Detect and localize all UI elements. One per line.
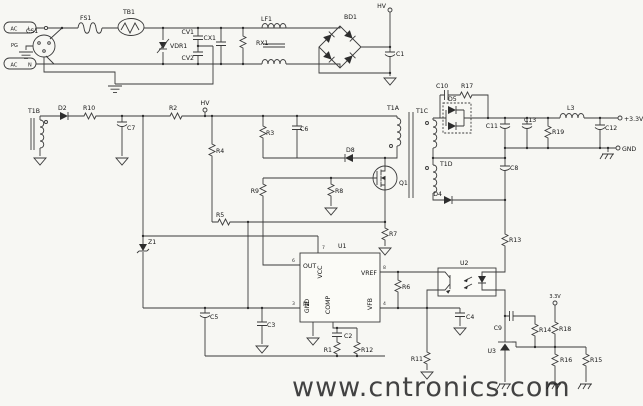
c5-capacitor-icon xyxy=(200,313,210,318)
r16-label: R16 xyxy=(560,357,572,364)
r5-resistor-icon xyxy=(216,219,232,225)
r16-resistor-icon xyxy=(552,352,558,368)
cv2-label: CV2 xyxy=(182,55,195,62)
u1-pin4-number: 4 xyxy=(383,301,386,307)
d5-diode-icon xyxy=(448,106,456,114)
r19-label: R19 xyxy=(552,129,564,136)
r17-resistor-icon xyxy=(458,92,474,98)
r2-label: R2 xyxy=(169,105,177,112)
watermark: www.cntronics.com xyxy=(292,372,571,403)
c9-label: C9 xyxy=(494,325,502,332)
d4-label: D4 xyxy=(433,191,442,198)
cs1-label: CS1 xyxy=(26,28,38,35)
c1-capacitor-icon xyxy=(385,52,395,57)
ground-icon xyxy=(454,328,466,335)
t1d-label: T1D xyxy=(439,161,453,168)
r18-resistor-icon xyxy=(552,320,558,336)
ground-icon xyxy=(384,78,396,85)
r9-resistor-icon xyxy=(260,182,266,198)
d4-diode-icon xyxy=(444,196,452,204)
c7-label: C7 xyxy=(127,125,135,132)
ac-live-label: AC xyxy=(11,27,18,33)
feedback-network: R13 U2 C9 R14 3.3V R18 U3 R16 R15 xyxy=(438,232,602,389)
d2-diode-icon xyxy=(60,112,68,120)
earth-ground-icon xyxy=(108,86,122,92)
fuse-fs1: FS1 xyxy=(78,15,102,33)
chassis-ground-icon xyxy=(600,154,614,159)
r7-label: R7 xyxy=(389,231,397,238)
ground-icon xyxy=(307,338,319,345)
c11-label: C11 xyxy=(486,123,498,130)
d5-diode-icon xyxy=(448,122,456,130)
c12-label: C12 xyxy=(605,125,617,132)
d2-label: D2 xyxy=(58,105,67,112)
r8-resistor-icon xyxy=(328,182,334,198)
c7-capacitor-icon xyxy=(117,122,127,127)
r17-label: R17 xyxy=(461,83,473,90)
r8-label: R8 xyxy=(335,188,343,195)
shunt-regulator-u3: U3 xyxy=(488,342,512,355)
l3-inductor-icon xyxy=(560,114,584,119)
ground-icon xyxy=(116,158,128,165)
optocoupler-u2: U2 xyxy=(438,260,496,296)
cv1-label: CV1 xyxy=(182,29,195,36)
r11-label: R11 xyxy=(411,356,423,363)
r3-label: R3 xyxy=(266,130,274,137)
r10-resistor-icon xyxy=(82,113,98,119)
rx1-resistor-icon xyxy=(240,34,246,50)
bridge-rectifier-bd1: BD1 xyxy=(319,14,361,68)
z1-label: Z1 xyxy=(148,239,156,246)
rx1-label: RX1 xyxy=(256,40,269,47)
cv1-capacitor-icon xyxy=(193,36,203,40)
r13-resistor-icon xyxy=(502,232,508,248)
c11-capacitor-icon xyxy=(500,124,510,129)
cv2-capacitor-icon xyxy=(193,52,203,56)
r6-label: R6 xyxy=(402,284,410,291)
r13-label: R13 xyxy=(509,237,521,244)
neutral-terminal-label: N xyxy=(28,63,32,69)
u1-pin8-number: 8 xyxy=(383,265,386,271)
u1-pin-vref-label: VREF xyxy=(361,270,377,277)
l3-label: L3 xyxy=(567,105,574,112)
t1c-label: T1C xyxy=(415,108,428,115)
r7-resistor-icon xyxy=(382,226,388,242)
d5-label: D5 xyxy=(448,96,457,103)
c5-label: C5 xyxy=(210,314,218,321)
c12-capacitor-icon xyxy=(595,125,605,130)
r6-resistor-icon xyxy=(395,278,401,294)
lf1-top-winding-icon xyxy=(262,24,286,29)
ground-icon xyxy=(34,158,46,165)
cx1-label: CX1 xyxy=(204,35,217,42)
c3-capacitor-icon xyxy=(257,322,267,326)
r4-label: R4 xyxy=(216,148,224,155)
chassis-ground-icon xyxy=(578,384,592,389)
c4-label: C4 xyxy=(466,314,474,321)
gnd-out-label: GND xyxy=(622,146,636,153)
c2-label: C2 xyxy=(344,333,352,340)
pg-label: PG xyxy=(11,43,18,49)
r10-label: R10 xyxy=(83,105,95,112)
u1-pin7-number: 7 xyxy=(322,245,325,251)
c3-label: C3 xyxy=(267,322,275,329)
q1-label: Q1 xyxy=(399,180,408,187)
r4-resistor-icon xyxy=(209,142,215,158)
cx1-capacitor-icon xyxy=(216,42,226,46)
secondary-side: T1C T1D D5 C10 R17 C11 C13 R19 L3 C12 +3… xyxy=(415,83,643,204)
r18-label: R18 xyxy=(559,326,571,333)
r11-resistor-icon xyxy=(424,350,430,366)
d8-label: D8 xyxy=(346,147,355,154)
c2-capacitor-icon xyxy=(332,333,342,337)
c8-capacitor-icon xyxy=(500,166,510,171)
c1-label: C1 xyxy=(396,51,404,58)
aux-supply: T1B D2 R10 C7 R2 HV R4 R5 Z1 C5 C3 xyxy=(27,100,275,353)
c13-capacitor-icon xyxy=(522,124,532,129)
wires xyxy=(26,12,618,382)
vout-label: +3.3V xyxy=(624,116,643,123)
c10-label: C10 xyxy=(436,83,448,90)
tb1-label: TB1 xyxy=(122,9,135,16)
u2-label: U2 xyxy=(460,260,469,267)
ac-neutral-label: AC xyxy=(11,63,18,69)
t1a-winding-icon xyxy=(397,118,401,146)
c4-capacitor-icon xyxy=(455,313,465,317)
hv-top-label: HV xyxy=(377,3,387,10)
ac-connector-cs1: AC L AC N CS1 PG xyxy=(4,22,55,69)
earth-ground-icon xyxy=(19,52,33,58)
c6-label: C6 xyxy=(300,126,308,133)
u1-pin-vcc-label: VCC xyxy=(317,266,324,279)
r19-resistor-icon xyxy=(545,124,551,140)
ground-icon xyxy=(325,208,337,215)
u3-label: U3 xyxy=(488,348,497,355)
fs1-label: FS1 xyxy=(80,15,91,22)
u1-pin3-number: 3 xyxy=(292,301,295,307)
lf1-label: LF1 xyxy=(261,16,272,23)
r1-label: R1 xyxy=(324,347,332,354)
vdr1-label: VDR1 xyxy=(170,43,187,50)
r2-resistor-icon xyxy=(168,113,184,119)
schematic-page: AC L AC N CS1 PG FS1 TB1 VDR1 CV1 CV2 CX… xyxy=(0,0,643,406)
r12-resistor-icon xyxy=(354,340,360,356)
t1c-winding-icon xyxy=(433,120,437,148)
v33-label: 3.3V xyxy=(549,294,561,300)
c9-capacitor-icon xyxy=(510,311,514,321)
t1b-winding-icon xyxy=(40,120,44,148)
u1-pin-gnd-label: GND xyxy=(304,299,311,313)
t1a-label: T1A xyxy=(386,105,400,112)
r15-resistor-icon xyxy=(583,352,589,368)
bd1-label: BD1 xyxy=(344,14,357,21)
u1-pin6-number: 6 xyxy=(292,258,295,264)
mosfet-q1: Q1 xyxy=(373,166,408,190)
thermistor-tb1: TB1 xyxy=(118,9,144,36)
r1-resistor-icon xyxy=(334,340,340,356)
ground-icon xyxy=(256,346,268,353)
u1-pin-vfb-label: VFB xyxy=(367,298,374,310)
r12-label: R12 xyxy=(361,347,373,354)
u1-label: U1 xyxy=(338,243,347,250)
d8-diode-icon xyxy=(345,154,353,162)
r14-label: R14 xyxy=(539,327,551,334)
ground-icon xyxy=(379,248,391,255)
r5-label: R5 xyxy=(216,212,224,219)
hv-mid-label: HV xyxy=(201,100,211,107)
z1-zener-icon xyxy=(139,244,147,251)
y-capacitors: CV1 CV2 xyxy=(108,29,203,92)
primary-side: R3 C6 D8 T1A Q1 R9 R8 R7 xyxy=(251,105,408,255)
r14-resistor-icon xyxy=(532,322,538,338)
c8-label: C8 xyxy=(510,165,518,172)
r15-label: R15 xyxy=(590,357,602,364)
u1-pin-comp-label: COMP xyxy=(325,296,332,315)
varistor-vdr1: VDR1 xyxy=(157,39,187,53)
t1d-winding-icon xyxy=(433,165,437,193)
t1b-label: T1B xyxy=(27,108,40,115)
pwm-controller-u1: U1 OUT VREF IN VCC GND COMP VFB 7 8 4 6 … xyxy=(292,243,474,379)
power-supply-schematic: AC L AC N CS1 PG FS1 TB1 VDR1 CV1 CV2 CX… xyxy=(0,0,643,406)
r9-label: R9 xyxy=(251,188,259,195)
lf1-bottom-winding-icon xyxy=(262,60,286,65)
u1-pin-out-label: OUT xyxy=(303,263,316,270)
